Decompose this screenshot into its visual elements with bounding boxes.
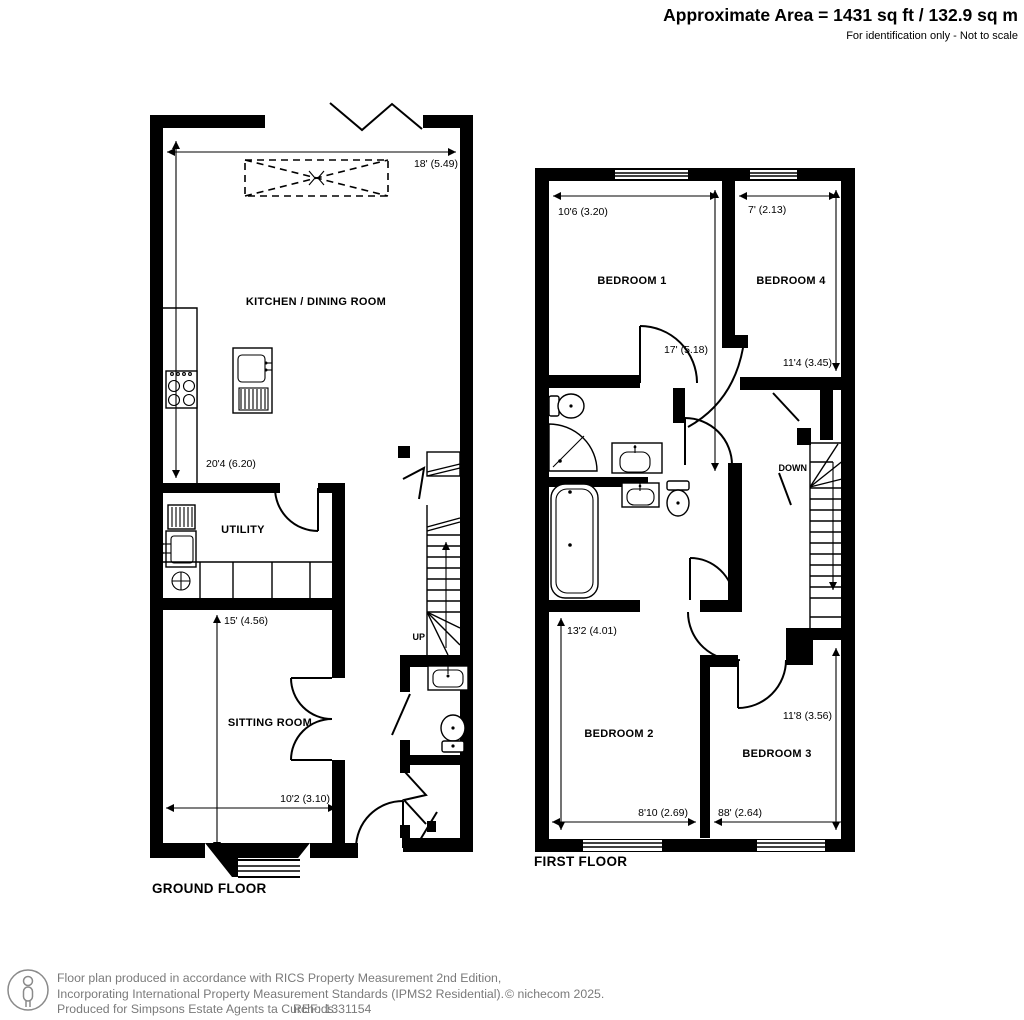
ensuite-toilet-icon: [549, 394, 584, 418]
ensuite-fixtures: [549, 394, 662, 473]
dim-sitting-width: 10'2 (3.10): [280, 793, 330, 805]
wc-toilet-icon: [441, 715, 465, 752]
footer-line2: Incorporating International Property Mea…: [57, 987, 504, 1001]
stairs-down-label: DOWN: [779, 463, 808, 473]
bathroom-sink-icon: [622, 483, 659, 507]
header: Approximate Area = 1431 sq ft / 132.9 sq…: [663, 5, 1018, 42]
stairs-door: [403, 468, 424, 499]
scale-note: For identification only - Not to scale: [846, 30, 1018, 42]
dim-bedroom1-length: 17' (5.18): [664, 344, 708, 356]
dim-bedroom1-width: 10'6 (3.20): [558, 206, 608, 218]
bathroom-door: [690, 558, 734, 600]
bedroom3-door: [738, 660, 786, 708]
cupboard-folding-door: [404, 772, 426, 824]
dim-bedroom2-width: 8'10 (2.69): [638, 807, 688, 819]
utility-door: [275, 488, 318, 531]
wall-break-line: [330, 103, 422, 130]
stairs-up-label: UP: [412, 632, 425, 642]
floorplan-canvas: Approximate Area = 1431 sq ft / 132.9 sq…: [0, 0, 1024, 1020]
room-label-utility: UTILITY: [221, 524, 265, 536]
room-label-bedroom3: BEDROOM 3: [742, 748, 811, 760]
sitting-room-door-upper: [291, 678, 332, 719]
dim-bedroom4-width: 7' (2.13): [748, 204, 786, 216]
approximate-area-label: Approximate Area = 1431 sq ft / 132.9 sq…: [663, 5, 1018, 25]
dim-bedroom3-width: 88' (2.64): [718, 807, 762, 819]
boiler-icon: [172, 572, 190, 590]
ensuite-sink-icon: [612, 443, 662, 473]
dim-kitchen-length: 20'4 (6.20): [206, 458, 256, 470]
person-scale-icon: [8, 970, 48, 1010]
ground-floor-dimensions: 18' (5.49) 20'4 (6.20) 15' (4.56) 10'2 (…: [166, 141, 458, 850]
hob-icon: [166, 371, 197, 408]
room-label-bedroom1: BEDROOM 1: [597, 275, 666, 287]
room-label-bedroom2: BEDROOM 2: [584, 728, 653, 740]
ground-floor-title: GROUND FLOOR: [152, 881, 267, 896]
shower-icon: [549, 424, 597, 471]
stairs-ground: UP: [412, 452, 460, 655]
bedroom2-door: [688, 612, 740, 660]
bath-icon: [551, 484, 598, 598]
footer-copyright: © nichecom 2025.: [505, 987, 604, 1001]
dim-kitchen-width: 18' (5.49): [414, 158, 458, 170]
kitchen-fixtures: [163, 308, 272, 483]
first-floor-title: FIRST FLOOR: [534, 854, 627, 869]
room-label-sitting: SITTING ROOM: [228, 717, 312, 729]
dim-bedroom3-length: 11'8 (3.56): [783, 710, 832, 722]
room-label-bedroom4: BEDROOM 4: [756, 275, 826, 287]
first-floor-plan: DOWN 10'6 (3.20) 7' (2.13) 17' (5.18): [534, 168, 855, 869]
footer: Floor plan produced in accordance with R…: [8, 970, 604, 1016]
ground-floor-walls: [150, 115, 473, 877]
island-sink-icon: [233, 348, 272, 413]
dim-sitting-length: 15' (4.56): [224, 615, 268, 627]
landing-cupboard-door: [773, 393, 799, 421]
room-label-kitchen-dining: KITCHEN / DINING ROOM: [246, 296, 386, 308]
floorplan-page: Approximate Area = 1431 sq ft / 132.9 sq…: [0, 0, 1024, 1020]
footer-line1: Floor plan produced in accordance with R…: [57, 971, 501, 985]
skylight-outline: [245, 160, 388, 196]
front-door: [356, 801, 403, 848]
wc-door: [392, 694, 410, 735]
dim-bedroom2-length: 13'2 (4.01): [567, 625, 617, 637]
airing-cupboard-door: [779, 473, 791, 505]
dim-bedroom4-length: 11'4 (3.45): [783, 357, 832, 369]
wc-sink-icon: [428, 666, 468, 690]
footer-ref: REF: 1331154: [293, 1002, 372, 1016]
ground-floor-plan: UP 18' (5.49) 20'4 (6.20) 15' (4.56): [150, 103, 473, 896]
bathroom-toilet-icon: [667, 481, 689, 516]
bathroom-fixtures: [551, 481, 689, 598]
washing-machine-icon: [168, 505, 195, 529]
